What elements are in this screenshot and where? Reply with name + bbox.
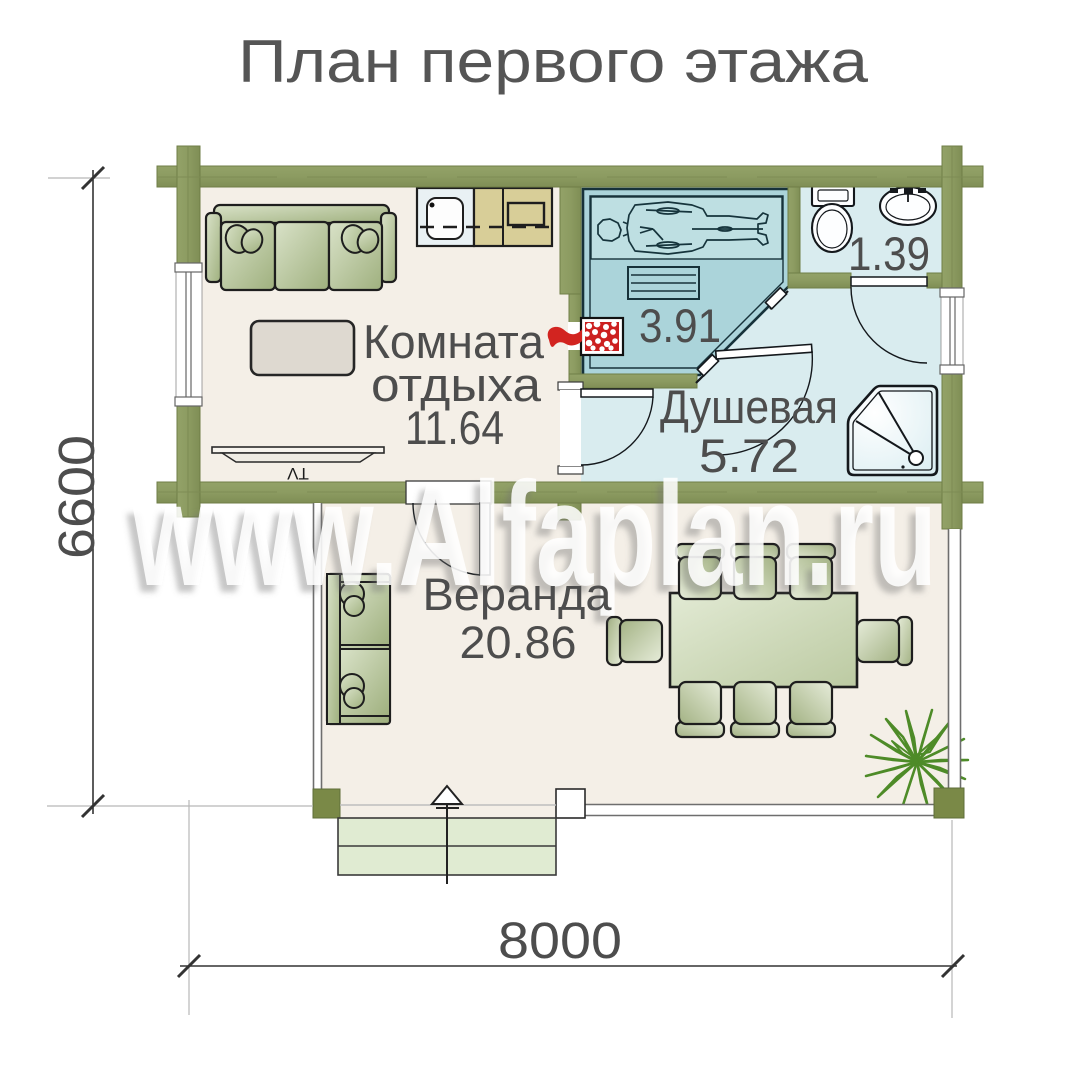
svg-text:8000: 8000 (498, 912, 622, 969)
svg-text:5.72: 5.72 (699, 429, 799, 482)
svg-text:План первого этажа: План первого этажа (238, 28, 869, 95)
svg-text:20.86: 20.86 (460, 617, 577, 668)
svg-text:Душевая: Душевая (660, 380, 838, 433)
svg-text:11.64: 11.64 (405, 401, 504, 454)
svg-text:Веранда: Веранда (423, 569, 613, 620)
svg-text:6600: 6600 (48, 435, 105, 559)
svg-text:3.91: 3.91 (639, 299, 721, 352)
svg-text:1.39: 1.39 (848, 227, 930, 280)
